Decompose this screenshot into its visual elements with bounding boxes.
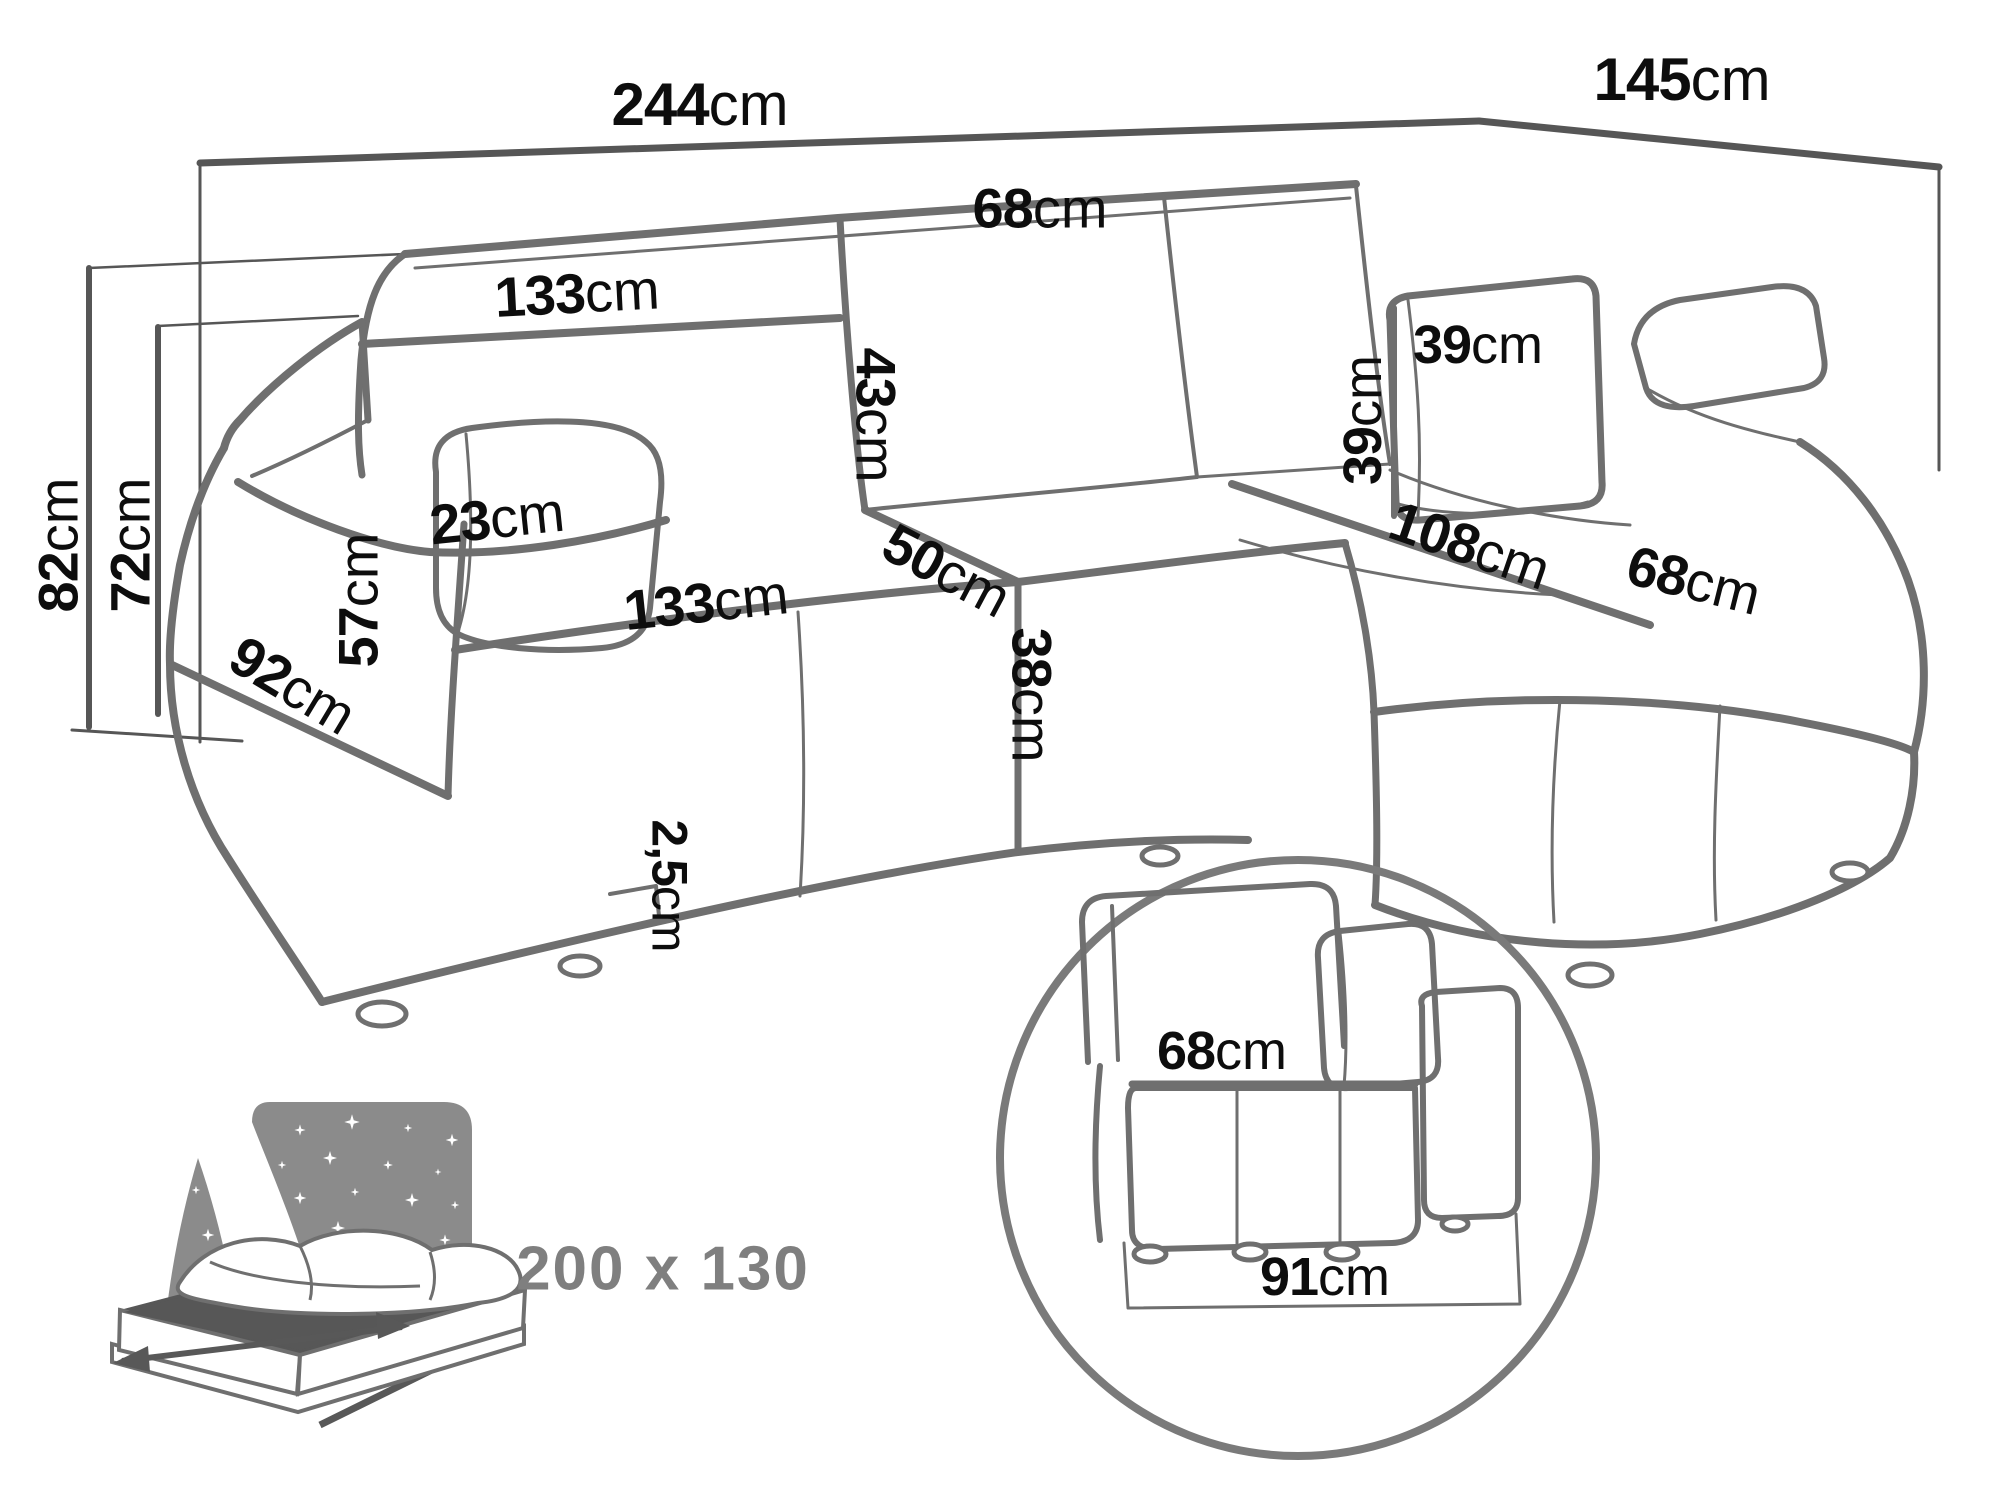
sofa-drawing: [170, 184, 1924, 1026]
dim-pillow-width: 39cm: [1413, 315, 1543, 375]
dim-total-width: 244cm: [611, 71, 788, 138]
dim-seat-depth: 50cm: [873, 511, 1022, 630]
dim-pillow-height: 39cm: [1333, 355, 1393, 485]
sleeping-area-label: 200 x 130: [516, 1235, 810, 1304]
sofa-dimension-diagram: 244cm 145cm 68cm 133cm 43cm 39cm 39cm 23…: [0, 0, 2000, 1500]
dim-back-cushion-right-width: 68cm: [973, 177, 1108, 240]
dim-height-without-cushions: 72cm: [99, 478, 162, 613]
dim-total-height: 82cm: [27, 478, 90, 613]
dim-chaise-width: 68cm: [1621, 533, 1767, 627]
dim-back-cushion-left-width: 133cm: [493, 257, 661, 329]
dim-inset-base-width: 91cm: [1260, 1247, 1390, 1307]
dim-seat-width: 133cm: [621, 562, 792, 642]
bed-icon: [112, 1231, 525, 1412]
dim-chaise-length: 108cm: [1382, 488, 1559, 601]
detail-inset: [1000, 860, 1596, 1456]
dim-back-cushion-height: 43cm: [844, 348, 907, 483]
duvet: [178, 1231, 521, 1314]
dim-seat-height: 38cm: [1000, 628, 1063, 763]
sleeping-function-icon: [112, 1102, 525, 1425]
dim-armrest-height: 57cm: [327, 533, 390, 668]
dim-total-depth: 145cm: [1593, 46, 1770, 113]
dim-inset-seat-height: 68cm: [1157, 1021, 1287, 1081]
dim-ground-clearance: 2,5cm: [642, 819, 698, 952]
